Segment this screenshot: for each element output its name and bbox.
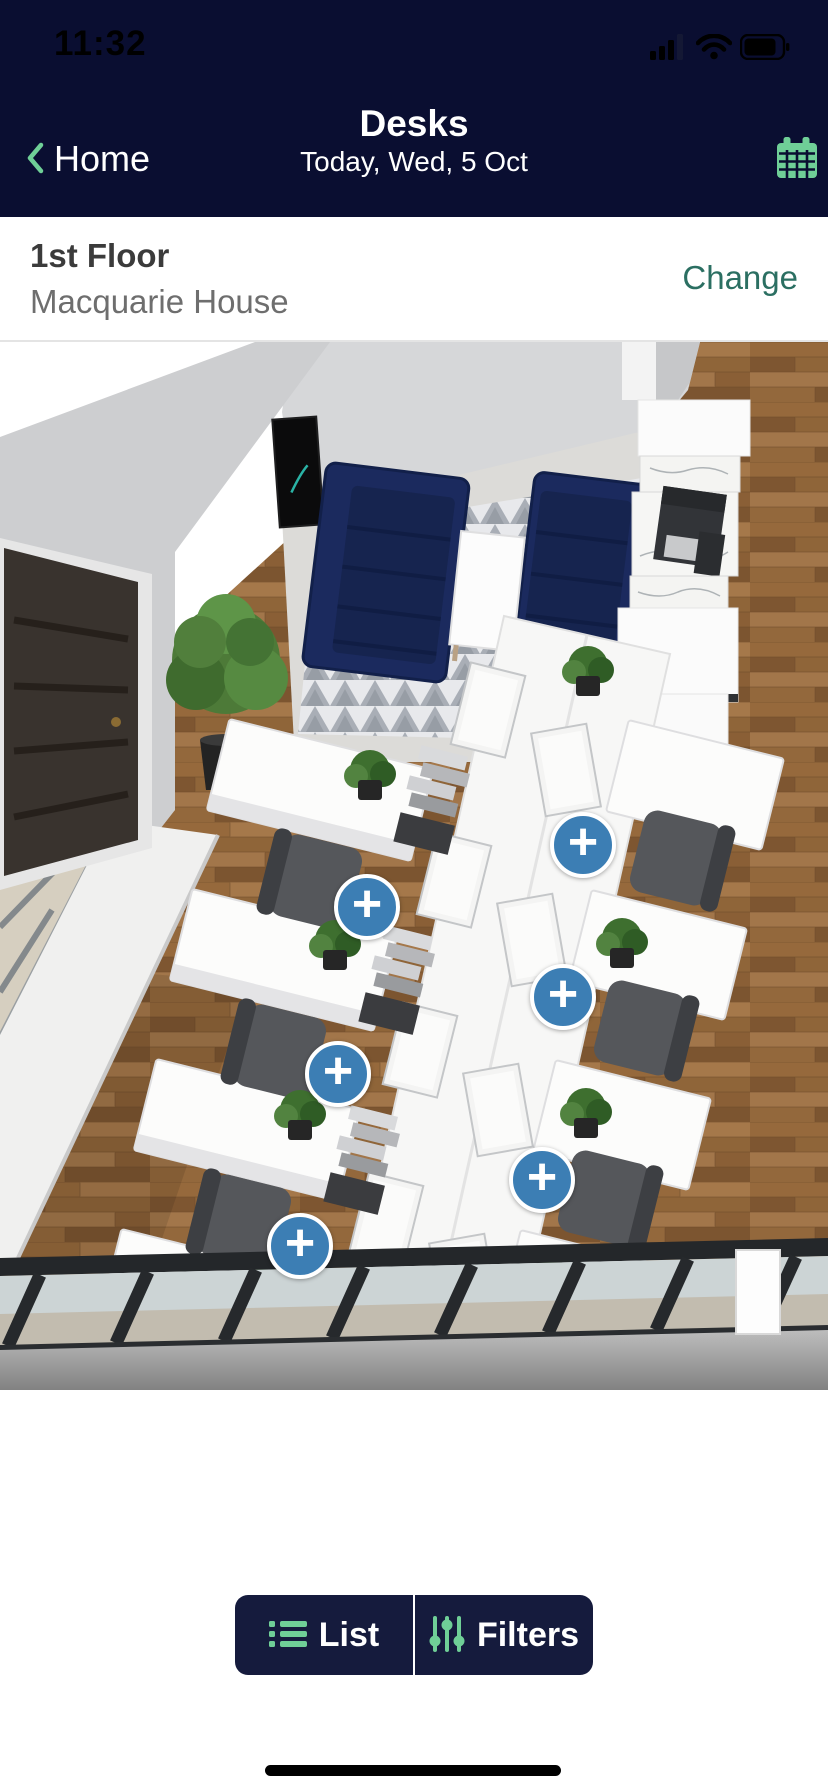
floor-label: 1st Floor <box>30 237 169 275</box>
plus-icon: + <box>527 1151 557 1203</box>
status-time: 11:32 <box>54 24 147 64</box>
location-bar: 1st Floor Macquarie House Change <box>0 217 828 342</box>
chevron-left-icon <box>26 142 44 177</box>
filters-label: Filters <box>477 1616 579 1655</box>
wifi-icon <box>696 34 732 65</box>
list-label: List <box>319 1616 379 1655</box>
plus-icon: + <box>548 968 578 1020</box>
building-label: Macquarie House <box>30 283 289 321</box>
calendar-button[interactable] <box>774 136 820 182</box>
desk-add-marker-5[interactable]: + <box>509 1147 575 1213</box>
floorplan-canvas[interactable]: ++++++ <box>0 342 828 1390</box>
list-icon <box>269 1618 307 1653</box>
desk-add-marker-6[interactable]: + <box>267 1213 333 1279</box>
header: 11:32 <box>0 0 828 217</box>
desk-add-marker-1[interactable]: + <box>550 812 616 878</box>
desk-add-marker-3[interactable]: + <box>530 964 596 1030</box>
status-icons <box>650 34 790 65</box>
home-indicator[interactable] <box>265 1765 561 1776</box>
desk-add-marker-4[interactable]: + <box>305 1041 371 1107</box>
bottom-bar: List Filters <box>235 1595 593 1675</box>
app-screen: 11:32 <box>0 0 828 1792</box>
plus-icon: + <box>323 1045 353 1097</box>
list-view-button[interactable]: List <box>235 1595 413 1675</box>
plus-icon: + <box>568 816 598 868</box>
filters-icon <box>429 1615 465 1656</box>
signal-icon <box>650 34 688 65</box>
desk-add-marker-2[interactable]: + <box>334 874 400 940</box>
change-location-button[interactable]: Change <box>682 259 798 297</box>
battery-icon <box>740 34 790 65</box>
plus-icon: + <box>352 878 382 930</box>
plus-icon: + <box>285 1217 315 1269</box>
calendar-icon <box>775 168 819 183</box>
back-button[interactable]: Home <box>26 138 150 180</box>
marker-layer: ++++++ <box>0 342 828 1390</box>
filters-button[interactable]: Filters <box>415 1595 593 1675</box>
back-label: Home <box>54 138 150 180</box>
